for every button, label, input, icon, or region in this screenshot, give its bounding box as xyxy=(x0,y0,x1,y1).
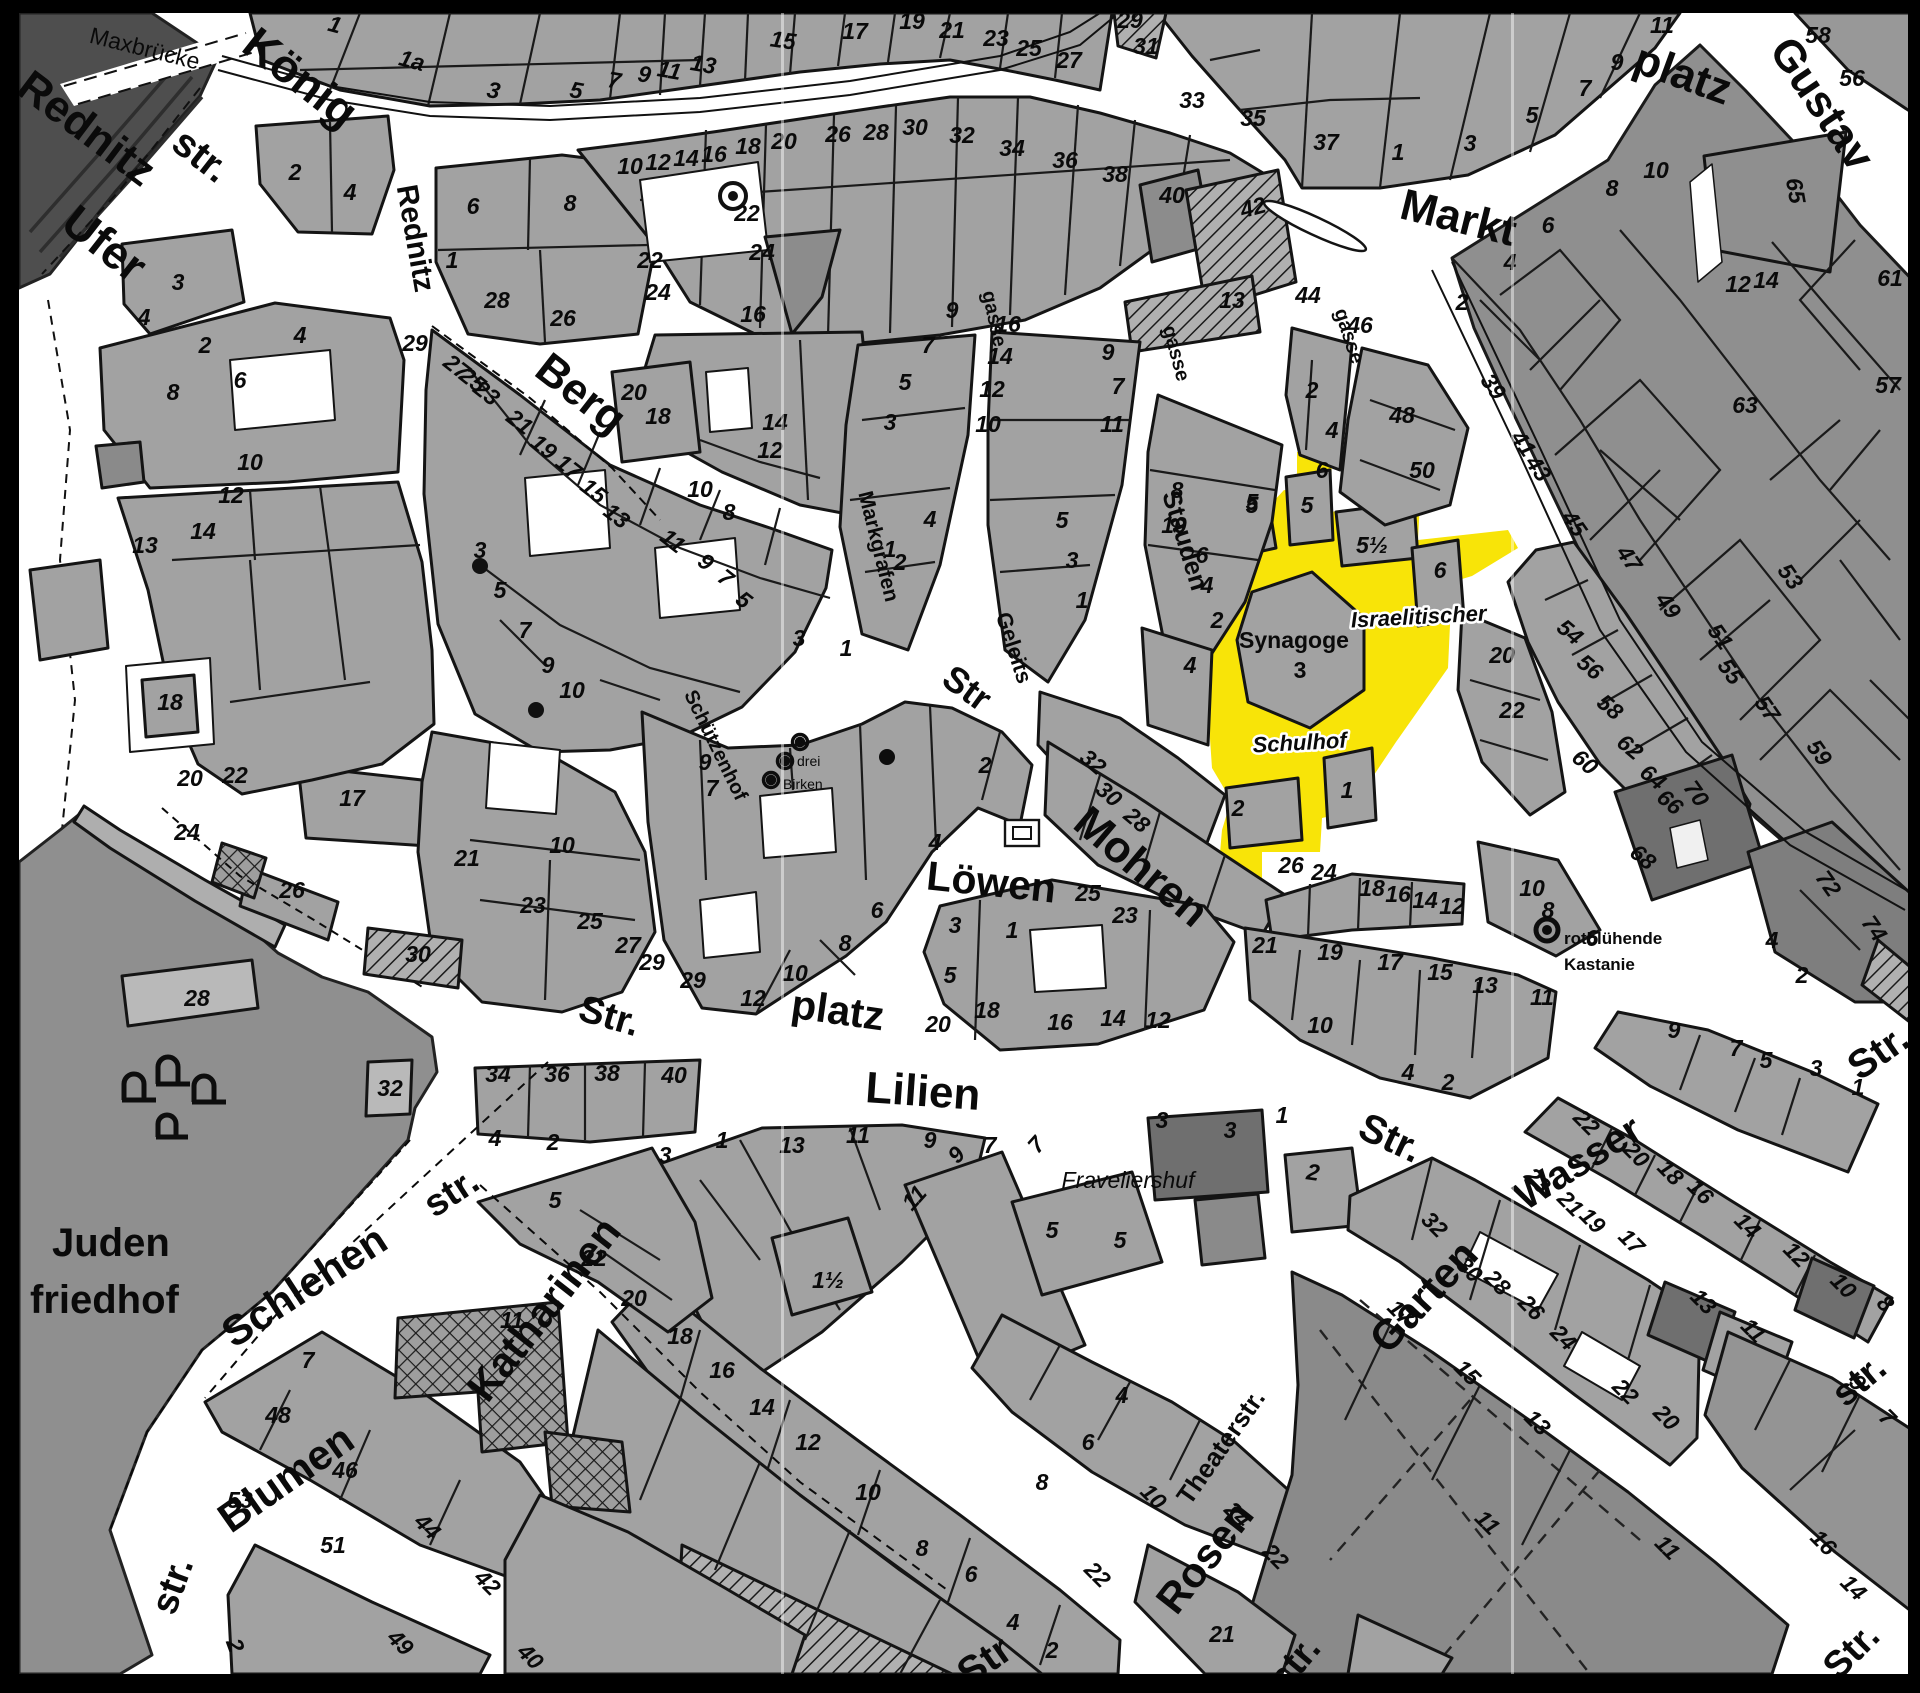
svg-text:10: 10 xyxy=(617,153,643,179)
svg-text:8: 8 xyxy=(1542,897,1555,923)
svg-text:8: 8 xyxy=(564,190,577,216)
svg-text:5: 5 xyxy=(899,369,913,395)
svg-text:18: 18 xyxy=(157,689,183,715)
svg-text:14: 14 xyxy=(749,1394,775,1420)
svg-text:14: 14 xyxy=(190,518,216,544)
svg-text:6: 6 xyxy=(234,367,247,393)
svg-text:36: 36 xyxy=(544,1061,570,1087)
svg-text:2: 2 xyxy=(1045,1637,1059,1663)
svg-text:18: 18 xyxy=(667,1323,693,1349)
svg-text:56: 56 xyxy=(1839,65,1865,91)
svg-text:7: 7 xyxy=(984,1132,998,1158)
svg-text:5: 5 xyxy=(494,577,508,603)
svg-text:27: 27 xyxy=(1055,47,1083,73)
svg-text:33: 33 xyxy=(1179,87,1205,113)
svg-text:20: 20 xyxy=(620,379,647,405)
svg-text:7: 7 xyxy=(706,775,720,801)
svg-text:23: 23 xyxy=(1111,902,1138,928)
svg-text:7: 7 xyxy=(1112,373,1126,399)
svg-text:29: 29 xyxy=(679,967,706,993)
svg-text:12: 12 xyxy=(1725,271,1751,297)
svg-text:16: 16 xyxy=(709,1357,735,1383)
svg-text:21: 21 xyxy=(938,17,965,43)
svg-text:2: 2 xyxy=(1441,1069,1455,1095)
svg-text:50: 50 xyxy=(1409,457,1435,483)
svg-text:16: 16 xyxy=(701,141,727,167)
svg-text:1: 1 xyxy=(1341,777,1354,803)
svg-text:22: 22 xyxy=(636,247,663,273)
svg-text:4: 4 xyxy=(1006,1609,1020,1635)
svg-text:38: 38 xyxy=(1102,161,1128,187)
svg-text:12: 12 xyxy=(645,149,671,175)
svg-text:2: 2 xyxy=(978,752,992,778)
svg-text:2: 2 xyxy=(1455,289,1469,315)
svg-text:37: 37 xyxy=(1313,129,1340,155)
svg-text:31: 31 xyxy=(1133,33,1159,59)
svg-text:10: 10 xyxy=(975,411,1001,437)
svg-text:4: 4 xyxy=(488,1125,502,1151)
svg-text:18: 18 xyxy=(974,997,1000,1023)
svg-text:8: 8 xyxy=(167,379,180,405)
svg-text:6: 6 xyxy=(1434,557,1447,583)
svg-text:40: 40 xyxy=(1158,182,1185,208)
svg-text:Lilien: Lilien xyxy=(864,1063,982,1120)
svg-text:57: 57 xyxy=(1875,372,1902,398)
svg-text:34: 34 xyxy=(999,135,1025,161)
svg-text:12: 12 xyxy=(740,985,766,1011)
svg-text:21: 21 xyxy=(1251,932,1278,958)
svg-text:9: 9 xyxy=(1102,339,1115,365)
svg-text:Kastanie: Kastanie xyxy=(1564,955,1635,974)
svg-text:12: 12 xyxy=(218,482,244,508)
svg-text:10: 10 xyxy=(1161,512,1187,538)
svg-text:3: 3 xyxy=(793,625,806,651)
svg-text:Schulhof: Schulhof xyxy=(1252,727,1350,757)
svg-text:10: 10 xyxy=(1643,157,1669,183)
svg-text:14: 14 xyxy=(1100,1005,1126,1031)
svg-text:29: 29 xyxy=(638,949,665,975)
svg-text:11: 11 xyxy=(1650,12,1674,38)
svg-text:6: 6 xyxy=(1316,457,1329,483)
svg-text:Synagoge: Synagoge xyxy=(1239,627,1349,653)
svg-text:6: 6 xyxy=(1082,1429,1095,1455)
svg-text:32: 32 xyxy=(949,122,975,148)
svg-text:1: 1 xyxy=(446,247,459,273)
svg-text:4: 4 xyxy=(1503,249,1517,275)
svg-text:3: 3 xyxy=(172,269,185,295)
svg-text:23: 23 xyxy=(519,892,546,918)
svg-text:7: 7 xyxy=(1730,1035,1744,1061)
svg-text:2: 2 xyxy=(546,1129,560,1155)
svg-text:drei: drei xyxy=(797,753,820,769)
svg-text:1: 1 xyxy=(1276,1102,1289,1128)
svg-text:13: 13 xyxy=(1219,287,1245,313)
svg-text:5: 5 xyxy=(1046,1217,1060,1243)
svg-text:4: 4 xyxy=(928,829,942,855)
svg-text:53: 53 xyxy=(227,1487,253,1513)
svg-text:58: 58 xyxy=(1805,22,1831,48)
svg-text:24: 24 xyxy=(644,279,671,305)
svg-text:28: 28 xyxy=(483,287,510,313)
svg-text:20: 20 xyxy=(620,1285,647,1311)
svg-text:9: 9 xyxy=(924,1127,937,1153)
svg-text:1: 1 xyxy=(1076,587,1089,613)
svg-text:10: 10 xyxy=(237,449,263,475)
svg-text:6: 6 xyxy=(871,897,884,923)
svg-text:16: 16 xyxy=(1047,1009,1073,1035)
svg-text:friedhof: friedhof xyxy=(30,1278,180,1322)
svg-text:11: 11 xyxy=(1530,984,1554,1010)
svg-text:16: 16 xyxy=(740,301,766,327)
svg-text:1: 1 xyxy=(1006,917,1019,943)
svg-text:36: 36 xyxy=(1052,147,1078,173)
svg-text:25: 25 xyxy=(1074,880,1102,906)
svg-text:1: 1 xyxy=(716,1127,729,1153)
svg-text:3: 3 xyxy=(1294,657,1307,683)
svg-text:8: 8 xyxy=(723,499,736,525)
svg-text:7: 7 xyxy=(922,332,936,358)
svg-text:25: 25 xyxy=(1015,35,1043,61)
svg-text:26: 26 xyxy=(549,305,576,331)
svg-text:4: 4 xyxy=(1765,927,1779,953)
svg-text:9: 9 xyxy=(946,297,959,323)
svg-text:10: 10 xyxy=(855,1479,881,1505)
svg-text:3: 3 xyxy=(1156,1107,1169,1133)
svg-text:11: 11 xyxy=(846,1122,870,1148)
svg-text:30: 30 xyxy=(405,941,431,967)
svg-text:2: 2 xyxy=(288,159,302,185)
svg-text:19: 19 xyxy=(1317,939,1343,965)
svg-text:13: 13 xyxy=(1472,972,1498,998)
svg-text:17: 17 xyxy=(1377,949,1404,975)
svg-text:6: 6 xyxy=(1196,542,1209,568)
svg-text:1: 1 xyxy=(840,635,853,661)
svg-text:14: 14 xyxy=(762,409,788,435)
svg-text:4: 4 xyxy=(1325,417,1339,443)
svg-text:22: 22 xyxy=(733,200,760,226)
svg-text:rotblühende: rotblühende xyxy=(1564,929,1662,948)
svg-text:10: 10 xyxy=(782,960,808,986)
svg-text:6: 6 xyxy=(1586,925,1599,951)
svg-text:35: 35 xyxy=(1240,105,1267,131)
svg-text:12: 12 xyxy=(1439,893,1465,919)
svg-text:5: 5 xyxy=(1114,1227,1128,1253)
svg-text:26: 26 xyxy=(1277,852,1304,878)
svg-text:1: 1 xyxy=(1852,1074,1865,1100)
svg-text:6: 6 xyxy=(467,193,480,219)
svg-text:8: 8 xyxy=(1171,477,1184,503)
svg-text:Juden: Juden xyxy=(52,1221,170,1265)
svg-text:3: 3 xyxy=(1810,1055,1823,1081)
svg-text:26: 26 xyxy=(824,121,851,147)
svg-text:8: 8 xyxy=(839,930,852,956)
svg-text:7: 7 xyxy=(519,617,533,643)
svg-text:11: 11 xyxy=(500,1307,524,1333)
svg-text:29: 29 xyxy=(401,330,428,356)
svg-text:5½: 5½ xyxy=(1356,532,1388,558)
svg-text:8: 8 xyxy=(1036,1469,1049,1495)
svg-text:5: 5 xyxy=(1760,1047,1774,1073)
svg-text:5: 5 xyxy=(1301,492,1315,518)
svg-text:5: 5 xyxy=(1246,489,1260,515)
svg-text:38: 38 xyxy=(594,1060,620,1086)
svg-text:4: 4 xyxy=(1183,652,1197,678)
svg-text:7: 7 xyxy=(302,1347,316,1373)
svg-text:6: 6 xyxy=(965,1561,978,1587)
svg-text:2: 2 xyxy=(1231,795,1245,821)
svg-text:22: 22 xyxy=(221,762,248,788)
svg-text:8: 8 xyxy=(916,1535,929,1561)
svg-text:9: 9 xyxy=(699,749,712,775)
svg-text:13: 13 xyxy=(132,532,158,558)
svg-text:28: 28 xyxy=(183,985,210,1011)
svg-text:63: 63 xyxy=(1732,392,1758,418)
svg-text:30: 30 xyxy=(902,114,928,140)
svg-text:5: 5 xyxy=(549,1187,563,1213)
svg-text:3: 3 xyxy=(659,1142,672,1168)
svg-text:46: 46 xyxy=(331,1457,358,1483)
svg-text:9: 9 xyxy=(1611,49,1624,75)
svg-text:4: 4 xyxy=(1115,1382,1129,1408)
svg-text:3: 3 xyxy=(949,912,962,938)
svg-text:4: 4 xyxy=(1200,572,1214,598)
svg-text:2: 2 xyxy=(893,549,907,575)
svg-text:17: 17 xyxy=(842,18,869,44)
svg-text:Birken: Birken xyxy=(783,776,823,792)
svg-text:12: 12 xyxy=(795,1429,821,1455)
svg-text:16: 16 xyxy=(1385,881,1411,907)
svg-text:7: 7 xyxy=(1579,75,1593,101)
svg-text:10: 10 xyxy=(687,476,713,502)
svg-text:4: 4 xyxy=(923,506,937,532)
svg-text:34: 34 xyxy=(485,1061,511,1087)
svg-text:23: 23 xyxy=(982,25,1009,51)
svg-text:28: 28 xyxy=(862,119,889,145)
svg-text:17: 17 xyxy=(339,785,366,811)
svg-text:21: 21 xyxy=(1208,1621,1235,1647)
svg-text:14: 14 xyxy=(673,145,699,171)
svg-text:1½: 1½ xyxy=(812,1267,844,1293)
svg-text:12: 12 xyxy=(979,376,1005,402)
svg-text:20: 20 xyxy=(924,1011,951,1037)
svg-text:24: 24 xyxy=(1310,859,1337,885)
svg-text:12: 12 xyxy=(757,437,783,463)
svg-text:48: 48 xyxy=(264,1402,291,1428)
svg-text:46: 46 xyxy=(1346,312,1373,338)
svg-text:9: 9 xyxy=(1668,1017,1681,1043)
svg-text:10: 10 xyxy=(559,677,585,703)
svg-text:15: 15 xyxy=(1427,959,1454,985)
svg-text:14: 14 xyxy=(1412,887,1438,913)
svg-text:51: 51 xyxy=(320,1532,346,1558)
svg-text:11: 11 xyxy=(1100,411,1124,437)
svg-text:48: 48 xyxy=(1388,402,1415,428)
svg-text:61: 61 xyxy=(1877,265,1903,291)
svg-text:10: 10 xyxy=(549,832,575,858)
svg-text:18: 18 xyxy=(645,403,671,429)
svg-text:5: 5 xyxy=(944,962,958,988)
svg-text:4: 4 xyxy=(137,304,151,330)
svg-text:8: 8 xyxy=(1606,175,1619,201)
svg-text:Fraveliershuf: Fraveliershuf xyxy=(1062,1167,1198,1193)
svg-text:12: 12 xyxy=(1145,1007,1171,1033)
svg-text:27: 27 xyxy=(614,932,642,958)
svg-text:5: 5 xyxy=(1526,102,1540,128)
svg-text:3: 3 xyxy=(474,537,487,563)
svg-text:32: 32 xyxy=(377,1075,403,1101)
svg-text:6: 6 xyxy=(1542,212,1555,238)
svg-text:2: 2 xyxy=(1305,377,1319,403)
svg-text:24: 24 xyxy=(173,819,200,845)
svg-text:14: 14 xyxy=(987,343,1013,369)
svg-text:11: 11 xyxy=(655,55,683,85)
svg-text:3: 3 xyxy=(884,409,897,435)
svg-text:4: 4 xyxy=(343,179,357,205)
svg-text:25: 25 xyxy=(576,908,604,934)
svg-text:9: 9 xyxy=(542,652,555,678)
svg-text:2: 2 xyxy=(198,332,212,358)
svg-text:18: 18 xyxy=(735,133,761,159)
svg-text:10: 10 xyxy=(1307,1012,1333,1038)
svg-text:3: 3 xyxy=(1224,1117,1237,1143)
svg-text:2: 2 xyxy=(1210,607,1224,633)
svg-text:5: 5 xyxy=(1056,507,1070,533)
svg-text:4: 4 xyxy=(1401,1059,1415,1085)
svg-text:20: 20 xyxy=(176,765,203,791)
svg-text:26: 26 xyxy=(278,877,305,903)
svg-text:22: 22 xyxy=(580,1245,607,1271)
svg-text:40: 40 xyxy=(660,1062,687,1088)
svg-text:14: 14 xyxy=(1753,267,1779,293)
svg-text:13: 13 xyxy=(689,49,719,79)
svg-text:1: 1 xyxy=(1392,139,1405,165)
svg-text:21: 21 xyxy=(453,845,480,871)
svg-text:16: 16 xyxy=(995,311,1021,337)
svg-text:20: 20 xyxy=(1488,642,1515,668)
svg-text:4: 4 xyxy=(293,322,307,348)
svg-text:3: 3 xyxy=(1066,547,1079,573)
svg-text:3: 3 xyxy=(1464,130,1477,156)
svg-text:44: 44 xyxy=(1294,282,1321,308)
svg-text:2: 2 xyxy=(1795,962,1809,988)
svg-text:24: 24 xyxy=(748,239,775,265)
svg-text:18: 18 xyxy=(1359,875,1385,901)
